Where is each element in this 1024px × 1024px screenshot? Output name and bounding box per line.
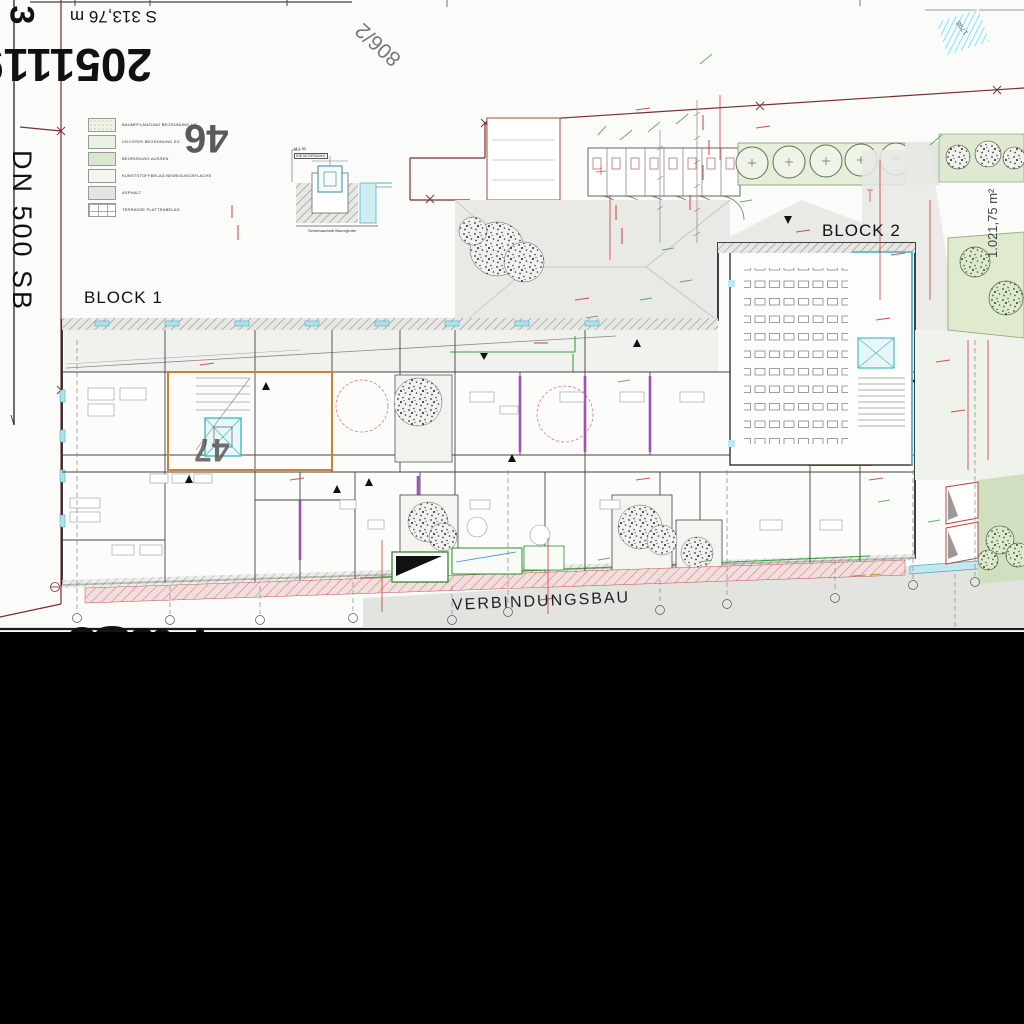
legend-label: KUNSTSTOFFBELAG BEWEGUNGSFLÄCHE <box>122 173 211 178</box>
site-plan-drawing <box>0 0 1024 632</box>
legend-swatch-kunststoff <box>88 169 116 183</box>
seat-grid <box>744 268 848 444</box>
legend-item: TERRASSE PLATTENBELAG <box>88 201 288 218</box>
legend-swatch-leichter <box>88 135 116 149</box>
legend-label: ASPHALT <box>122 190 141 195</box>
legend: BAUMPFLANZUNG BEGRÜNUNG UG LEICHTER BEGR… <box>88 116 288 218</box>
margin-digit: 3 <box>4 6 38 25</box>
legend-label: LEICHTER BEGRÜNUNG EG <box>122 139 180 144</box>
legend-item: ASPHALT <box>88 184 288 201</box>
survey-number: 2051119 <box>0 42 152 88</box>
legend-swatch-asphalt <box>88 186 116 200</box>
legend-swatch-begruenung <box>88 152 116 166</box>
site-plan-sheet: 3 2051119 S 313,76 m DN 500 SB 46 47 806… <box>0 0 1024 632</box>
block1-label: BLOCK 1 <box>84 289 163 306</box>
legend-item: LEICHTER BEGRÜNUNG EG <box>88 133 288 150</box>
parcel-47: 47 <box>194 434 230 466</box>
detail-scale-note: M 1:50 <box>294 147 306 151</box>
block2-label: BLOCK 2 <box>822 222 901 239</box>
area-right: 1.021,75 m² <box>986 148 999 258</box>
north-strip <box>487 9 1024 220</box>
legend-swatch-baumpflanzung <box>88 118 116 132</box>
detail-caption: Schemaschnitt Baumgrube <box>308 229 356 233</box>
legend-item: BAUMPFLANZUNG BEGRÜNUNG UG <box>88 116 288 133</box>
legend-label: BAUMPFLANZUNG BEGRÜNUNG UG <box>122 122 197 127</box>
detail-ref-note: KIESKÖRNUNG <box>294 153 328 159</box>
pipe-label: DN 500 SB <box>8 150 35 320</box>
legend-item: KUNSTSTOFFBELAG BEWEGUNGSFLÄCHE <box>88 167 288 184</box>
survey-length: S 313,76 m <box>70 8 157 25</box>
legend-swatch-terrasse <box>88 203 116 217</box>
screen: 3 2051119 S 313,76 m DN 500 SB 46 47 806… <box>0 0 1024 1024</box>
detail-section <box>292 150 392 226</box>
legend-label: TERRASSE PLATTENBELAG <box>122 207 180 212</box>
legend-label: BEGRÜNUNG AUSSEN <box>122 156 169 161</box>
legend-item: BEGRÜNUNG AUSSEN <box>88 150 288 167</box>
